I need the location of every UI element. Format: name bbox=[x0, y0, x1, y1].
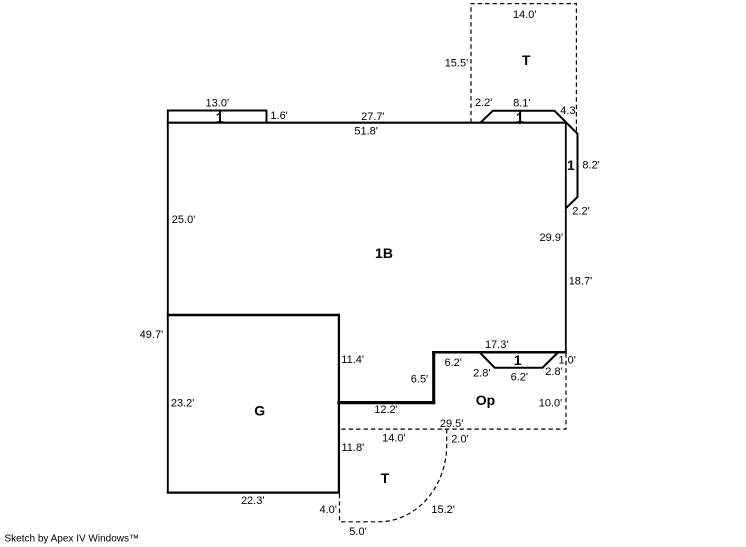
svg-text:12.2': 12.2' bbox=[374, 404, 398, 416]
svg-text:5.0': 5.0' bbox=[349, 526, 366, 538]
svg-text:14.0': 14.0' bbox=[382, 432, 406, 444]
svg-text:1: 1 bbox=[516, 110, 524, 126]
svg-text:Op: Op bbox=[476, 392, 495, 408]
svg-text:4.0': 4.0' bbox=[319, 504, 336, 516]
svg-text:2.8': 2.8' bbox=[473, 368, 490, 380]
svg-text:15.5': 15.5' bbox=[445, 58, 469, 70]
svg-text:1.6': 1.6' bbox=[270, 110, 287, 122]
svg-text:15.2': 15.2' bbox=[431, 504, 455, 516]
svg-text:6.2': 6.2' bbox=[444, 357, 461, 369]
svg-text:25.0': 25.0' bbox=[172, 214, 196, 226]
svg-text:1.0': 1.0' bbox=[558, 354, 575, 366]
svg-text:T: T bbox=[381, 470, 390, 486]
svg-text:29.9': 29.9' bbox=[540, 232, 564, 244]
svg-text:23.2': 23.2' bbox=[171, 398, 195, 410]
svg-text:6.2': 6.2' bbox=[511, 371, 528, 383]
svg-text:2.2': 2.2' bbox=[475, 97, 492, 109]
svg-text:4.3': 4.3' bbox=[560, 105, 577, 117]
svg-text:14.0': 14.0' bbox=[513, 9, 537, 21]
svg-text:22.3': 22.3' bbox=[241, 495, 265, 507]
svg-text:8.2': 8.2' bbox=[582, 160, 599, 172]
svg-text:11.4': 11.4' bbox=[341, 354, 364, 366]
svg-text:10.0': 10.0' bbox=[539, 398, 563, 410]
svg-text:27.7': 27.7' bbox=[361, 111, 385, 123]
svg-text:17.3': 17.3' bbox=[485, 339, 509, 351]
svg-text:1: 1 bbox=[216, 110, 224, 126]
svg-text:1: 1 bbox=[567, 157, 575, 173]
svg-text:18.7': 18.7' bbox=[569, 275, 593, 287]
svg-text:G: G bbox=[254, 403, 265, 419]
svg-text:Sketch by Apex IV Windows™: Sketch by Apex IV Windows™ bbox=[5, 534, 140, 545]
svg-text:2.8': 2.8' bbox=[545, 366, 562, 378]
svg-text:2.2': 2.2' bbox=[572, 206, 589, 218]
svg-text:11.8': 11.8' bbox=[342, 442, 365, 454]
svg-text:1B: 1B bbox=[375, 245, 393, 261]
svg-text:T: T bbox=[522, 52, 531, 68]
svg-text:6.5': 6.5' bbox=[411, 374, 428, 386]
svg-text:29.5': 29.5' bbox=[440, 418, 464, 430]
svg-text:51.8': 51.8' bbox=[354, 126, 378, 138]
svg-text:49.7': 49.7' bbox=[140, 329, 164, 341]
svg-text:1: 1 bbox=[514, 352, 522, 368]
svg-text:13.0': 13.0' bbox=[206, 97, 230, 109]
svg-text:8.1': 8.1' bbox=[513, 98, 530, 110]
svg-text:2.0': 2.0' bbox=[451, 434, 468, 446]
